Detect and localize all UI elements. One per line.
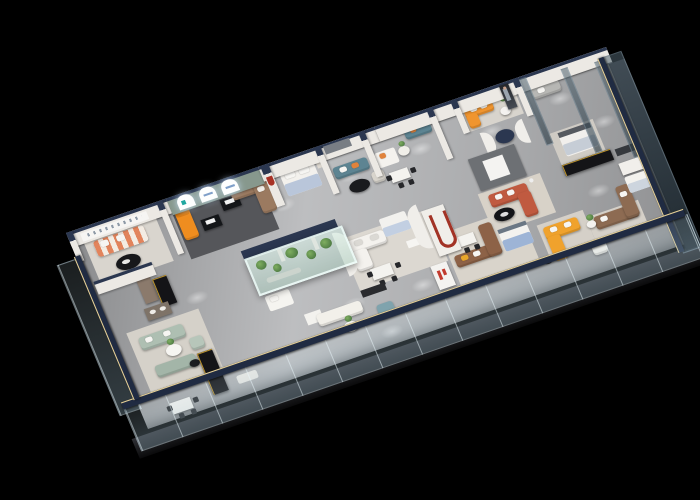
ceiling-light-glow — [407, 139, 434, 158]
ceiling-light-glow — [585, 181, 612, 200]
dining-chair — [398, 182, 405, 189]
showroom-floor — [66, 47, 688, 429]
showroom-render-canvas: 3D isometric cutaway rendering of a furn… — [0, 0, 700, 500]
ceiling-light-glow — [410, 275, 437, 294]
ceiling-light-glow — [184, 288, 211, 307]
curved-pylon-wall — [512, 119, 532, 146]
dining-chair — [410, 167, 417, 174]
round-side-table — [397, 144, 412, 157]
dining-chair — [408, 179, 415, 186]
